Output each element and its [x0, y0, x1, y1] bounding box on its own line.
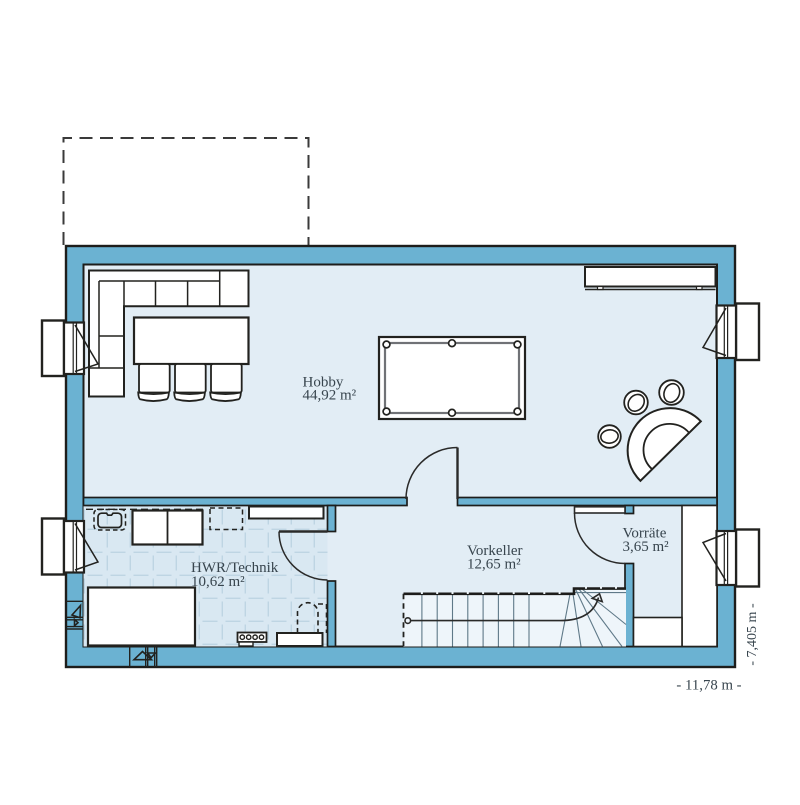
svg-text:12,65 m²: 12,65 m² [467, 557, 521, 573]
svg-text:- 11,78 m -: - 11,78 m - [676, 678, 741, 694]
svg-text:10,62 m²: 10,62 m² [191, 574, 245, 590]
svg-text:3,65 m²: 3,65 m² [623, 539, 670, 555]
svg-text:- 7,405 m -: - 7,405 m - [745, 603, 760, 666]
svg-text:44,92 m²: 44,92 m² [303, 388, 357, 404]
